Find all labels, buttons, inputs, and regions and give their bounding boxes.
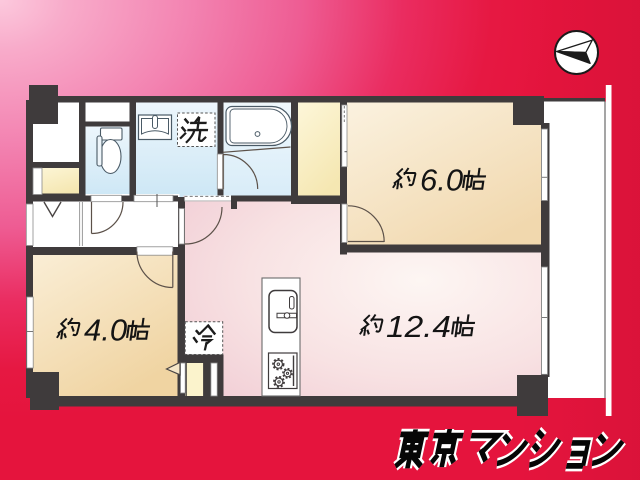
svg-text:6.0: 6.0	[420, 163, 463, 198]
svg-text:12.4: 12.4	[386, 309, 451, 344]
svg-text:4.0: 4.0	[84, 313, 127, 348]
